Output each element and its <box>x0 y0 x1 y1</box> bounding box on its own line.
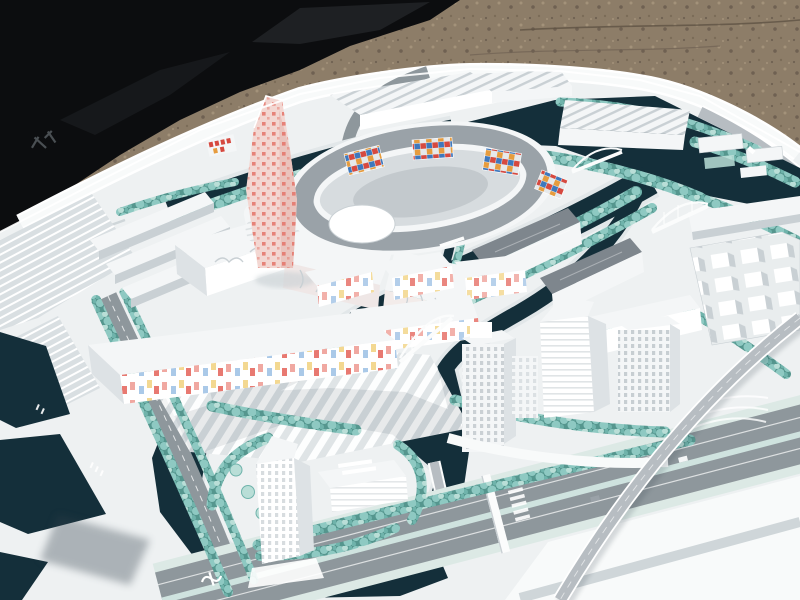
grid-midrise <box>616 316 680 412</box>
model-scene <box>0 0 800 600</box>
photo-architectural-model <box>0 0 800 600</box>
tower-a-crown <box>470 322 492 338</box>
mosaic-panel <box>412 137 453 160</box>
dome-pavilion <box>329 205 395 243</box>
pink-tower-shadow <box>255 272 315 288</box>
podium-slab-windows <box>512 356 538 418</box>
